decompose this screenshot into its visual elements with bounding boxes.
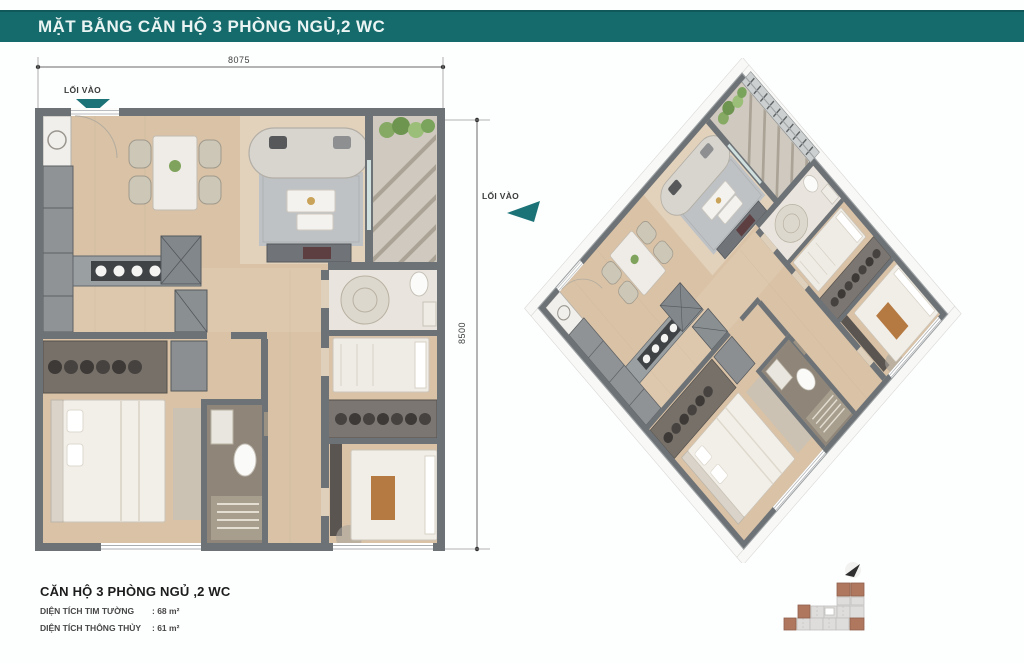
page-title: MẶT BẰNG CĂN HỘ 3 PHÒNG NGỦ,2 WC (0, 17, 385, 37)
floor-plan-page: MẶT BẰNG CĂN HỘ 3 PHÒNG NGỦ,2 WC 8075 85… (0, 0, 1024, 663)
keyplan-arrow-icon (845, 562, 861, 578)
plan-2d-drawing (35, 108, 445, 558)
dimension-right (440, 108, 495, 560)
header-bar: MẶT BẰNG CĂN HỘ 3 PHÒNG NGỦ,2 WC (0, 10, 1024, 42)
area-row-tim-tuong: DIỆN TÍCH TIM TƯỜNG : 68 m² (40, 606, 360, 616)
unit-info-title: CĂN HỘ 3 PHÒNG NGỦ ,2 WC (40, 584, 360, 599)
area-row-thong-thuy: DIỆN TÍCH THÔNG THỦY : 61 m² (40, 623, 360, 633)
area-label: DIỆN TÍCH TIM TƯỜNG (40, 606, 152, 616)
dimension-top-label: 8075 (228, 55, 250, 65)
plan-3d-drawing (518, 58, 988, 563)
dimension-right-label: 8500 (457, 315, 467, 351)
unit-info: CĂN HỘ 3 PHÒNG NGỦ ,2 WC DIỆN TÍCH TIM T… (40, 584, 360, 633)
area-label: DIỆN TÍCH THÔNG THỦY (40, 623, 152, 633)
area-value: : 68 m² (152, 606, 179, 616)
keyplan (781, 561, 877, 645)
entry-label-3d: LỐI VÀO (482, 191, 519, 201)
entry-label-2d: LỐI VÀO (64, 85, 101, 95)
area-value: : 61 m² (152, 623, 179, 633)
